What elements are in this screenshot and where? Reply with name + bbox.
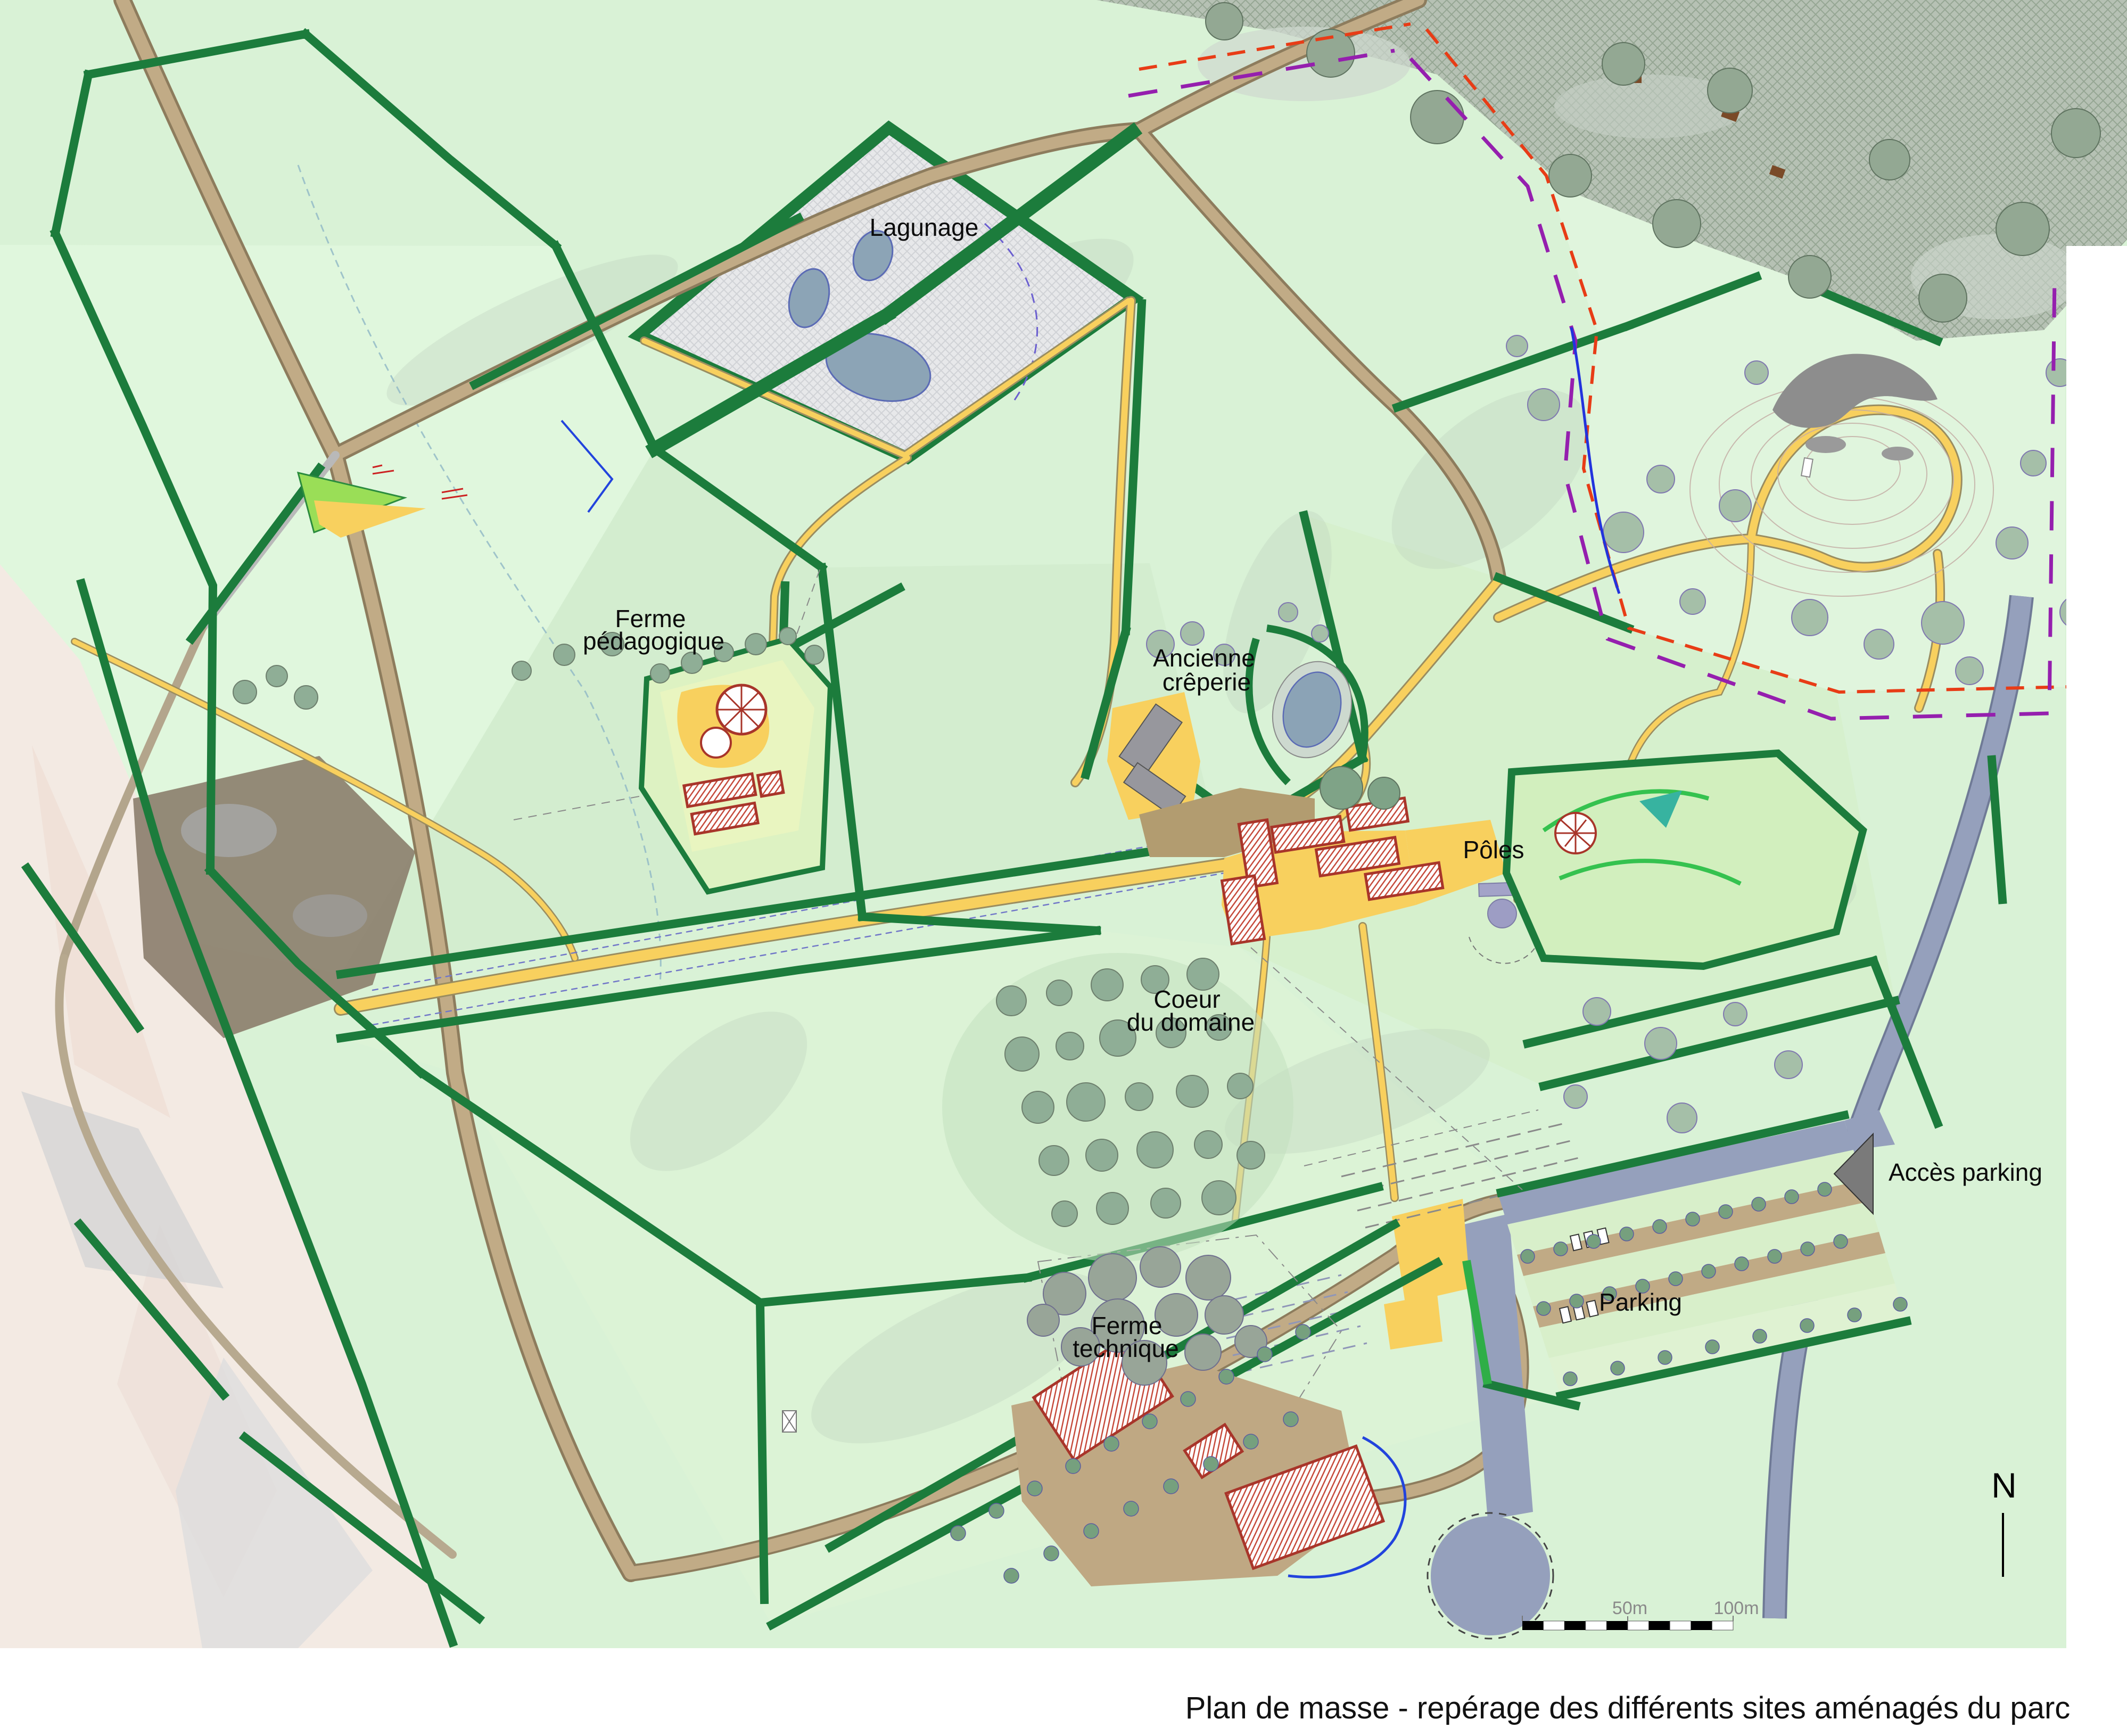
- label-acces-parking: Accès parking: [1889, 1158, 2042, 1186]
- site-plan-map: 50m 100m N Lagunage Ferme pédagogique An…: [0, 0, 2127, 1736]
- site-poles: [1506, 753, 1863, 966]
- site-plan-page: 50m 100m N Lagunage Ferme pédagogique An…: [0, 0, 2127, 1736]
- scale-bar-mid-label: 50m: [1612, 1598, 1647, 1618]
- label-lagunage: Lagunage: [870, 213, 979, 241]
- label-ferme-technique-2: technique: [1073, 1335, 1179, 1362]
- orchard-trees: [942, 953, 1293, 1262]
- label-ferme-pedagogique-2: pédagogique: [583, 627, 724, 655]
- farm-building: [758, 771, 784, 796]
- scale-bar-end-label: 100m: [1713, 1598, 1759, 1618]
- right-margin: [2066, 246, 2127, 1651]
- page-title: Plan de masse - repérage des différents …: [1185, 1691, 2071, 1725]
- label-parking: Parking: [1599, 1288, 1682, 1316]
- north-label: N: [1991, 1466, 2017, 1505]
- roundabout: [1431, 1516, 1550, 1635]
- label-coeur-du-domaine-2: du domaine: [1127, 1008, 1255, 1036]
- label-ancienne-creperie-2: crêperie: [1163, 668, 1251, 696]
- label-poles: Pôles: [1463, 836, 1524, 863]
